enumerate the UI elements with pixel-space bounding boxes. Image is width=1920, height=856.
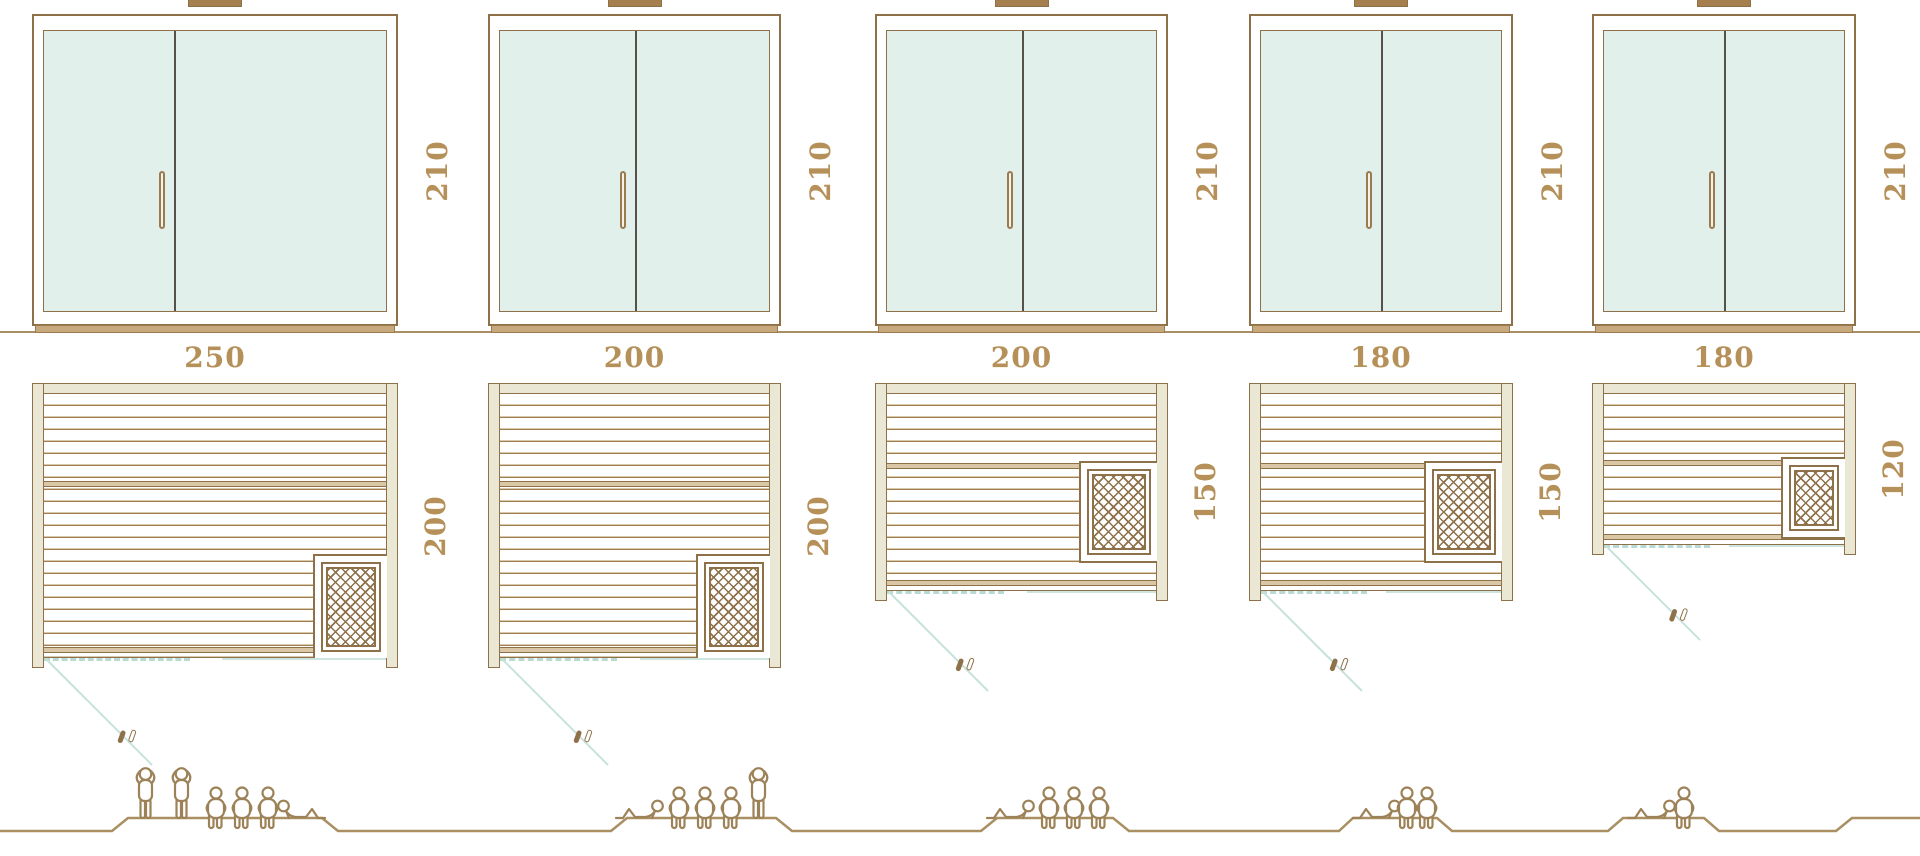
- person-sitting-icon: [722, 788, 741, 829]
- person-sitting-icon: [207, 788, 226, 829]
- door-swing-line: [1262, 591, 1362, 691]
- height-dimension-label: 210: [1881, 129, 1911, 213]
- depth-dimension-label: 150: [1536, 450, 1566, 534]
- door-threshold-line: [222, 658, 386, 660]
- door-sill: [1252, 325, 1510, 333]
- capacity-figures: [0, 756, 1920, 856]
- sauna-unit-200x200: 210 200 200: [488, 0, 781, 856]
- door-sill: [491, 325, 778, 333]
- door-handle: [620, 171, 626, 229]
- heater-stones-icon: [1437, 474, 1491, 550]
- person-sitting-icon: [696, 788, 715, 829]
- roof-vent: [1354, 0, 1408, 7]
- ground-line: [0, 818, 1920, 831]
- door-opening-dashed-line: [500, 658, 617, 661]
- heater-stones-icon: [326, 567, 376, 647]
- front-elevation: [488, 14, 781, 326]
- bench-planks: [886, 393, 1157, 591]
- heater-icon: [704, 562, 764, 652]
- door-opening-dashed-line: [44, 658, 190, 661]
- person-sitting-icon: [670, 788, 689, 829]
- person-sitting-icon: [1040, 788, 1059, 829]
- person-lying-icon: [1628, 801, 1675, 818]
- person-standing-icon: [750, 768, 768, 818]
- heater-niche: [1781, 457, 1845, 539]
- height-dimension-label: 210: [806, 129, 836, 213]
- door-threshold-line: [1386, 591, 1501, 593]
- glass-door-panels: [886, 30, 1157, 312]
- width-dimension-label: 180: [1592, 341, 1856, 375]
- door-opening-dashed-line: [887, 591, 1004, 594]
- door-handle: [1366, 171, 1372, 229]
- roof-vent: [188, 0, 242, 7]
- sauna-unit-180x150: 210 180 150: [1249, 0, 1513, 856]
- floor-plan: [32, 383, 398, 668]
- person-sitting-icon: [233, 788, 252, 829]
- door-handle: [1709, 171, 1715, 229]
- heater-niche: [696, 554, 770, 658]
- door-knob-icon: [1325, 654, 1345, 674]
- door-divider: [1381, 31, 1383, 311]
- plan-wall-right: [1844, 383, 1856, 555]
- heater-niche: [313, 554, 387, 658]
- person-sitting-icon: [1675, 788, 1694, 829]
- plan-wall-right: [769, 383, 781, 668]
- capacity-group-180x150: [1353, 788, 1436, 829]
- person-standing-icon: [137, 768, 155, 818]
- glass-door-panels: [43, 30, 387, 312]
- heater-stones-icon: [1794, 470, 1834, 526]
- roof-vent: [1697, 0, 1751, 7]
- bench-planks: [499, 393, 770, 658]
- plan-wall-right: [1156, 383, 1168, 601]
- door-sill: [35, 325, 395, 333]
- door-threshold-line: [1027, 591, 1156, 593]
- heater-stones-icon: [709, 567, 759, 647]
- person-lying-icon: [278, 801, 325, 818]
- door-opening-dashed-line: [1604, 545, 1710, 548]
- bench-planks: [1603, 393, 1845, 545]
- capacity-group-180x120: [1628, 788, 1693, 829]
- bench-planks: [1260, 393, 1502, 591]
- bench-planks: [43, 393, 387, 658]
- floor-plan: [488, 383, 781, 668]
- bench-edge-line: [500, 481, 769, 487]
- heater-icon: [1789, 465, 1839, 531]
- floor-plan: [1592, 383, 1856, 555]
- height-dimension-label: 210: [1538, 129, 1568, 213]
- door-swing-line: [501, 658, 608, 765]
- glass-door-panels: [1260, 30, 1502, 312]
- heater-stones-icon: [1092, 474, 1146, 550]
- door-divider: [635, 31, 637, 311]
- door-handle: [1007, 171, 1013, 229]
- person-lying-icon: [1353, 801, 1400, 818]
- door-threshold-line: [640, 658, 769, 660]
- bench-edge-line: [887, 580, 1156, 586]
- person-lying-icon: [616, 801, 663, 818]
- door-knob-icon: [113, 726, 133, 746]
- plan-wall-right: [386, 383, 398, 668]
- heater-icon: [321, 562, 381, 652]
- capacity-group-200x150: [987, 788, 1108, 829]
- glass-door-panels: [499, 30, 770, 312]
- height-dimension-label: 210: [1193, 129, 1223, 213]
- door-knob-icon: [951, 654, 971, 674]
- door-sill: [1595, 325, 1853, 333]
- person-sitting-icon: [1418, 788, 1437, 829]
- plan-wall-right: [1501, 383, 1513, 601]
- door-divider: [1724, 31, 1726, 311]
- person-sitting-icon: [1398, 788, 1417, 829]
- sauna-unit-200x150: 210 200 150: [875, 0, 1168, 856]
- door-handle: [159, 171, 165, 229]
- depth-dimension-label: 120: [1879, 427, 1909, 511]
- person-lying-icon: [987, 801, 1034, 818]
- front-elevation: [1249, 14, 1513, 326]
- width-dimension-label: 180: [1249, 341, 1513, 375]
- person-standing-icon: [173, 768, 191, 818]
- person-sitting-icon: [259, 788, 278, 829]
- heater-icon: [1087, 469, 1151, 555]
- door-knob-icon: [1665, 605, 1685, 625]
- front-elevation: [1592, 14, 1856, 326]
- person-sitting-icon: [1065, 788, 1084, 829]
- sauna-unit-250x200: 210 250 200: [32, 0, 398, 856]
- bench-edge-line: [44, 481, 386, 487]
- glass-door-panels: [1603, 30, 1845, 312]
- width-dimension-label: 200: [875, 341, 1168, 375]
- width-dimension-label: 250: [32, 341, 398, 375]
- door-opening-dashed-line: [1261, 591, 1367, 594]
- door-threshold-line: [1729, 545, 1844, 547]
- heater-niche: [1079, 461, 1157, 563]
- roof-vent: [995, 0, 1049, 7]
- sauna-size-diagram: 210 250 200: [0, 0, 1920, 856]
- door-divider: [1022, 31, 1024, 311]
- door-swing-line: [888, 591, 988, 691]
- front-elevation: [875, 14, 1168, 326]
- door-sill: [878, 325, 1165, 333]
- bench-edge-line: [1261, 580, 1501, 586]
- door-divider: [174, 31, 176, 311]
- heater-icon: [1432, 469, 1496, 555]
- door-knob-icon: [569, 726, 589, 746]
- front-elevation: [32, 14, 398, 326]
- depth-dimension-label: 150: [1191, 450, 1221, 534]
- sauna-unit-180x120: 210 180 120: [1592, 0, 1856, 856]
- height-dimension-label: 210: [423, 129, 453, 213]
- floor-plan: [1249, 383, 1513, 601]
- door-swing-line: [1605, 545, 1700, 640]
- person-sitting-icon: [1090, 788, 1109, 829]
- heater-niche: [1424, 461, 1502, 563]
- depth-dimension-label: 200: [804, 484, 834, 568]
- depth-dimension-label: 200: [421, 484, 451, 568]
- width-dimension-label: 200: [488, 341, 781, 375]
- floor-plan: [875, 383, 1168, 601]
- door-swing-line: [45, 658, 152, 765]
- roof-vent: [608, 0, 662, 7]
